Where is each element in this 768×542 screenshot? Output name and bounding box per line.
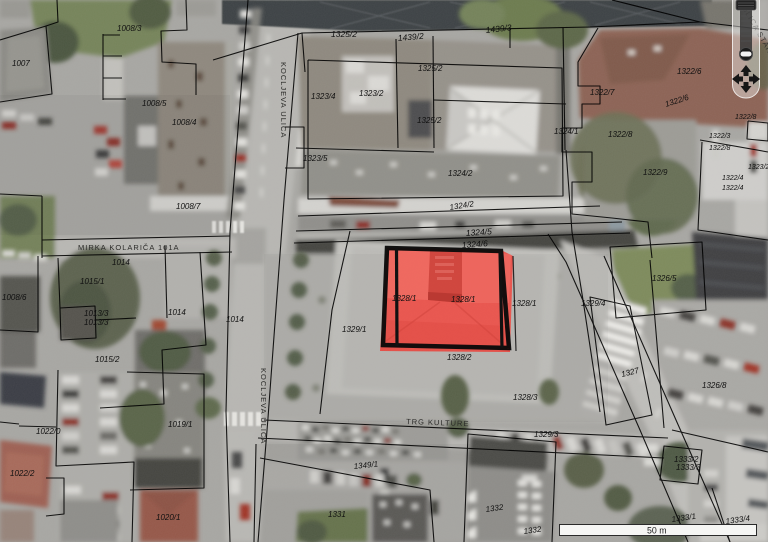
svg-text:MIRKA KOLARIČA 101A: MIRKA KOLARIČA 101A [78, 243, 180, 252]
svg-text:1323/5: 1323/5 [303, 154, 328, 163]
svg-text:1322/8: 1322/8 [709, 145, 731, 152]
svg-text:1324/5: 1324/5 [465, 226, 492, 238]
svg-text:1322/3: 1322/3 [709, 133, 731, 140]
svg-text:1325/2: 1325/2 [417, 116, 442, 125]
svg-text:1008/7: 1008/7 [176, 202, 201, 211]
svg-text:1022/2: 1022/2 [10, 469, 35, 478]
svg-text:KOCLJEVA ULICA: KOCLJEVA ULICA [279, 62, 288, 138]
svg-text:1328/1: 1328/1 [512, 299, 536, 308]
svg-text:1333/3: 1333/3 [676, 463, 701, 472]
svg-text:1014: 1014 [168, 308, 186, 317]
svg-text:1329/3: 1329/3 [534, 430, 559, 439]
svg-text:1331: 1331 [328, 510, 346, 519]
svg-text:1322/8: 1322/8 [608, 130, 633, 139]
svg-text:1322/8: 1322/8 [735, 114, 757, 121]
svg-text:1015/1: 1015/1 [80, 277, 104, 286]
svg-text:1325/2: 1325/2 [331, 29, 357, 39]
svg-text:1007: 1007 [12, 59, 30, 68]
svg-text:1008/3: 1008/3 [117, 24, 142, 33]
svg-text:1322/6: 1322/6 [677, 67, 702, 76]
svg-text:1328/1: 1328/1 [392, 294, 416, 303]
svg-text:1329/4: 1329/4 [581, 299, 606, 308]
svg-text:1013/3: 1013/3 [84, 318, 109, 327]
svg-text:1323/2: 1323/2 [748, 164, 768, 171]
svg-text:1328/3: 1328/3 [513, 393, 538, 402]
svg-text:1008/6: 1008/6 [2, 293, 27, 302]
svg-text:1022/0: 1022/0 [36, 427, 61, 436]
svg-text:1322/4: 1322/4 [722, 175, 744, 182]
svg-text:1013/3: 1013/3 [84, 309, 109, 318]
svg-text:1324/2: 1324/2 [448, 169, 473, 178]
svg-text:50 m: 50 m [647, 526, 667, 536]
svg-text:1008/5: 1008/5 [142, 99, 167, 108]
svg-text:1328/2: 1328/2 [447, 353, 472, 362]
svg-text:1324/6: 1324/6 [461, 238, 488, 250]
svg-text:1328/1: 1328/1 [451, 295, 475, 304]
svg-text:1325/2: 1325/2 [418, 64, 443, 73]
svg-text:1324/1: 1324/1 [554, 127, 578, 136]
svg-text:1323/2: 1323/2 [359, 89, 384, 98]
svg-text:1326/5: 1326/5 [652, 274, 677, 283]
svg-text:1326/8: 1326/8 [702, 381, 727, 390]
svg-text:1014: 1014 [112, 258, 130, 267]
svg-text:1020/1: 1020/1 [156, 513, 180, 522]
svg-text:1014: 1014 [226, 315, 244, 324]
svg-text:1008/4: 1008/4 [172, 118, 197, 127]
svg-text:1322/7: 1322/7 [590, 88, 615, 97]
svg-text:1323/4: 1323/4 [311, 92, 336, 101]
svg-text:1019/1: 1019/1 [168, 420, 192, 429]
svg-text:1329/1: 1329/1 [342, 325, 366, 334]
svg-text:1322/9: 1322/9 [643, 168, 668, 177]
svg-text:1322/4: 1322/4 [722, 185, 744, 192]
svg-text:KOCLJEVA ULICA: KOCLJEVA ULICA [259, 368, 268, 444]
svg-text:1015/2: 1015/2 [95, 355, 120, 364]
